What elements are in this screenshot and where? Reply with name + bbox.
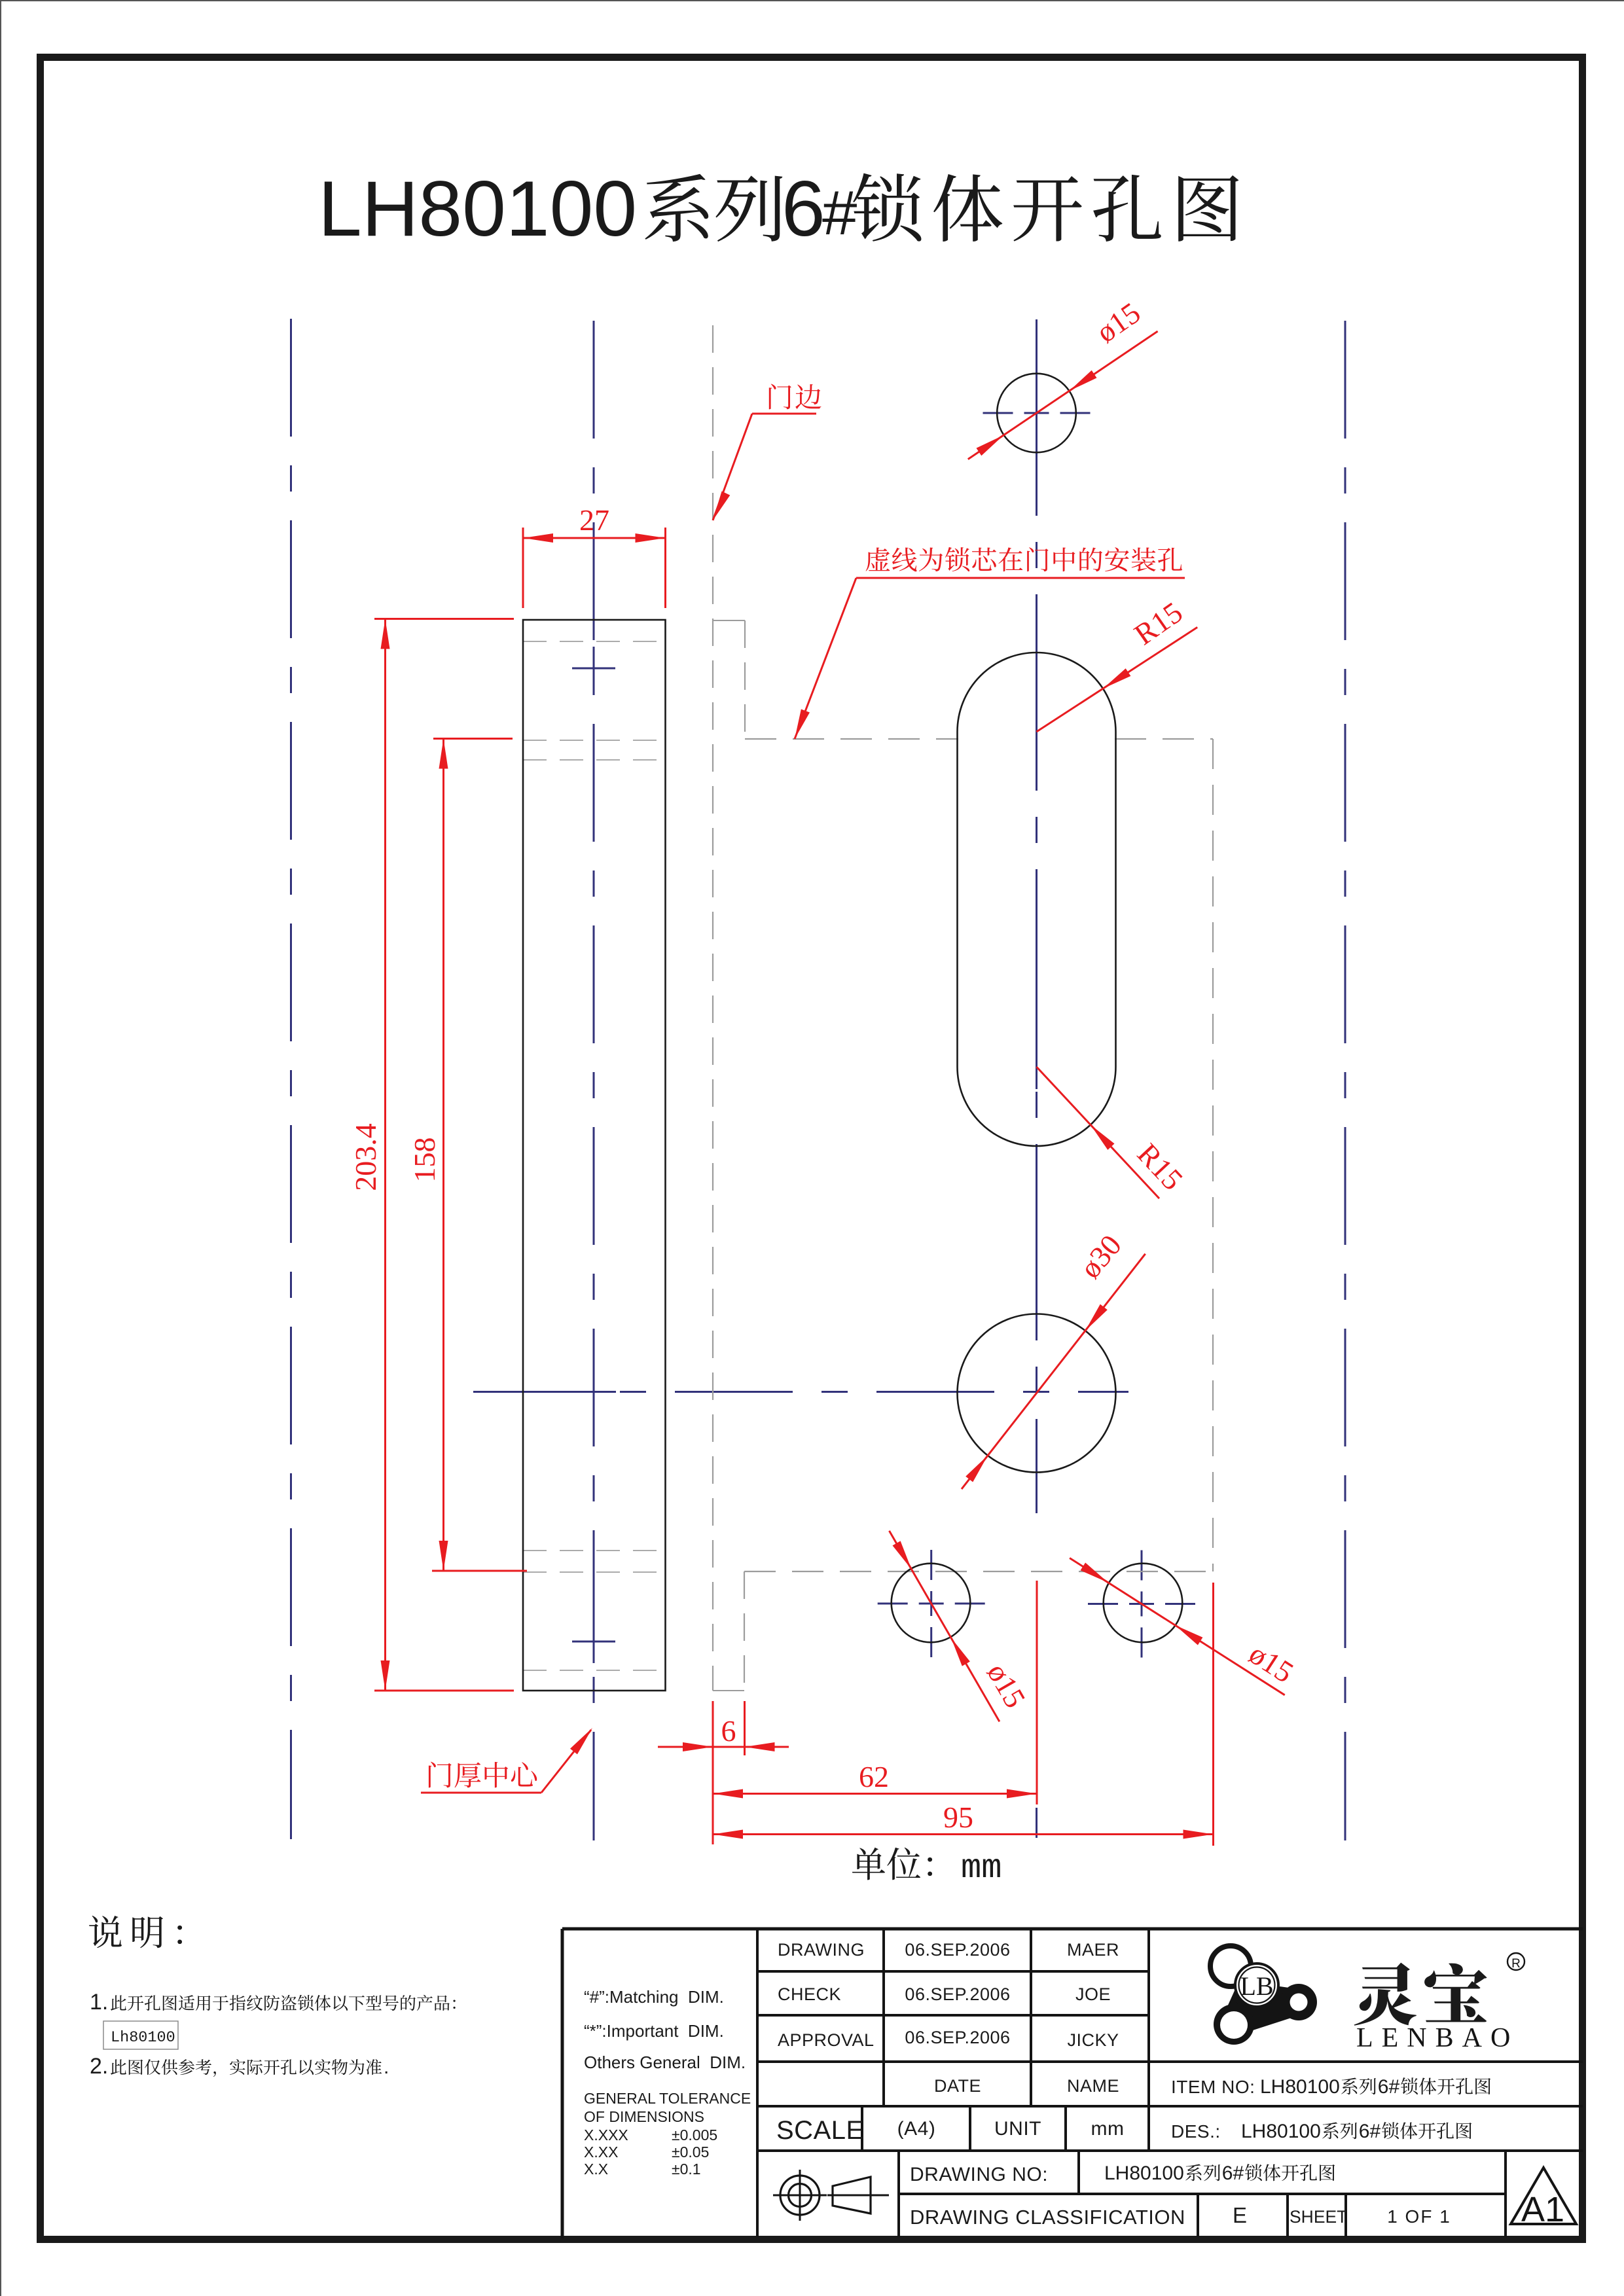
svg-text:UNIT: UNIT <box>994 2118 1041 2140</box>
svg-text:X.XXX: X.XXX <box>584 2126 628 2144</box>
svg-text:X.XX: X.XX <box>584 2144 618 2161</box>
svg-text:06.SEP.2006: 06.SEP.2006 <box>905 1940 1010 1960</box>
svg-text:LH80100: LH80100 <box>1104 2162 1184 2184</box>
svg-text:6#: 6# <box>1222 2162 1244 2184</box>
svg-text:158: 158 <box>408 1138 441 1183</box>
svg-text:203.4: 203.4 <box>349 1123 382 1191</box>
svg-text:LH80100: LH80100 <box>1241 2121 1321 2142</box>
svg-text:6#: 6# <box>1359 2121 1381 2142</box>
svg-text:JOE: JOE <box>1075 1984 1111 2004</box>
svg-text:X.X: X.X <box>584 2161 608 2178</box>
svg-text:SHEET: SHEET <box>1290 2207 1347 2227</box>
svg-text:ITEM NO:: ITEM NO: <box>1171 2077 1255 2097</box>
svg-text:“#”:Matching DIM.: “#”:Matching DIM. <box>584 1987 724 2007</box>
svg-text:6#: 6# <box>1378 2076 1400 2098</box>
svg-text:A1: A1 <box>1521 2190 1564 2229</box>
svg-text:6: 6 <box>782 165 825 253</box>
svg-text:1.: 1. <box>90 1990 108 2015</box>
svg-text:LH80100: LH80100 <box>318 165 637 253</box>
svg-text:.: . <box>384 2056 389 2078</box>
svg-text:±0.1: ±0.1 <box>672 2161 701 2178</box>
svg-text:(A4): (A4) <box>897 2118 936 2140</box>
svg-text:27: 27 <box>579 503 609 537</box>
svg-text:#: # <box>822 178 857 248</box>
svg-text:DRAWING CLASSIFICATION: DRAWING CLASSIFICATION <box>910 2206 1185 2229</box>
svg-text:2.: 2. <box>90 2054 108 2079</box>
svg-text:LENBAO: LENBAO <box>1356 2023 1519 2053</box>
svg-text:62: 62 <box>859 1760 889 1793</box>
svg-text:R: R <box>1511 1957 1521 1971</box>
svg-text:APPROVAL: APPROVAL <box>778 2030 875 2050</box>
svg-text:DRAWING: DRAWING <box>778 1940 865 1960</box>
svg-text:JICKY: JICKY <box>1067 2030 1119 2050</box>
svg-text:6: 6 <box>721 1714 736 1748</box>
svg-text:MAER: MAER <box>1067 1940 1119 1960</box>
svg-text:NAME: NAME <box>1067 2076 1119 2096</box>
svg-text:SCALE: SCALE <box>776 2116 864 2145</box>
svg-text:DATE: DATE <box>934 2076 981 2096</box>
svg-text:LB: LB <box>1240 1971 1273 2001</box>
svg-text:LH80100: LH80100 <box>1260 2076 1340 2098</box>
svg-text:CHECK: CHECK <box>778 1984 841 2004</box>
svg-text:E: E <box>1233 2203 1247 2227</box>
svg-text:DRAWING NO:: DRAWING NO: <box>910 2164 1048 2185</box>
svg-text:±0.005: ±0.005 <box>672 2126 717 2144</box>
svg-text:Others General DIM.: Others General DIM. <box>584 2053 746 2072</box>
svg-text:GENERAL TOLERANCE: GENERAL TOLERANCE <box>584 2090 751 2107</box>
svg-text:“*”:Important DIM.: “*”:Important DIM. <box>584 2021 724 2041</box>
svg-text:mm: mm <box>1091 2118 1125 2140</box>
svg-text:95: 95 <box>943 1801 973 1834</box>
svg-text:1 OF 1: 1 OF 1 <box>1387 2206 1451 2227</box>
svg-text:mm: mm <box>961 1849 1001 1888</box>
svg-text:06.SEP.2006: 06.SEP.2006 <box>905 1984 1010 2004</box>
svg-text:±0.05: ±0.05 <box>672 2144 709 2161</box>
svg-text:OF DIMENSIONS: OF DIMENSIONS <box>584 2108 704 2125</box>
svg-text:06.SEP.2006: 06.SEP.2006 <box>905 2028 1010 2047</box>
svg-text:Lh80100: Lh80100 <box>111 2029 175 2047</box>
svg-text:DES.:: DES.: <box>1171 2121 1221 2142</box>
